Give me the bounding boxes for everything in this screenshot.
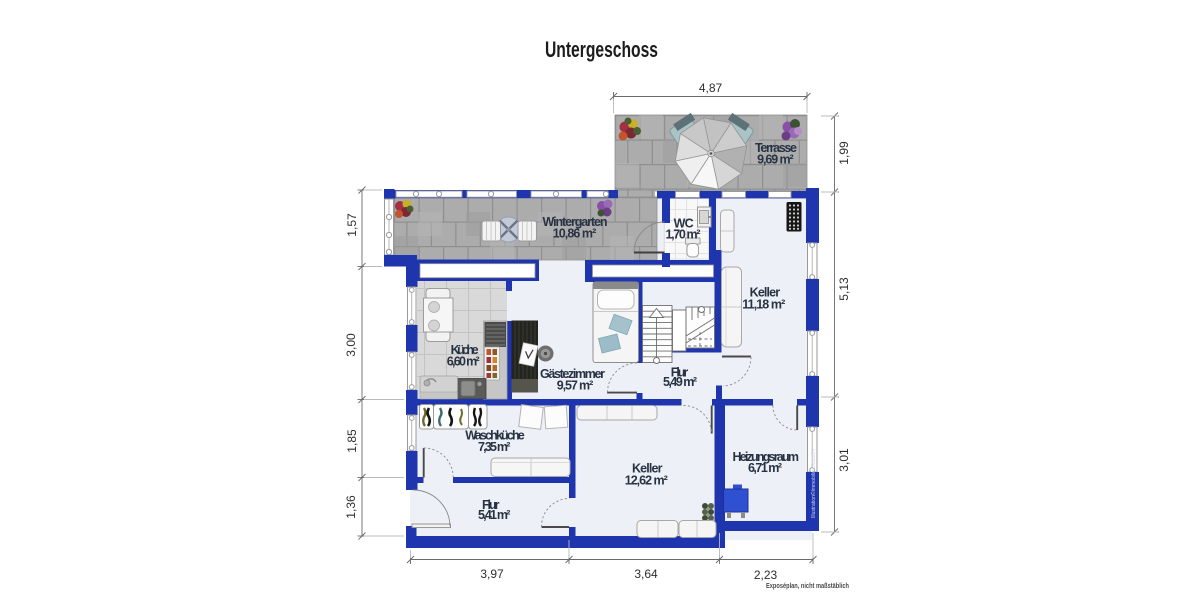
svg-text:1,36: 1,36 — [344, 495, 358, 519]
svg-text:1,57: 1,57 — [345, 213, 359, 237]
svg-text:11,18 m²: 11,18 m² — [742, 298, 785, 312]
svg-text:1,85: 1,85 — [345, 429, 359, 453]
svg-text:1,99: 1,99 — [837, 141, 851, 165]
svg-text:5,49 m²: 5,49 m² — [663, 375, 697, 389]
svg-text:Untergeschoss: Untergeschoss — [545, 37, 658, 62]
svg-text:3,00: 3,00 — [344, 333, 358, 357]
svg-text:12,62 m²: 12,62 m² — [625, 474, 668, 488]
svg-text:6,71 m²: 6,71 m² — [748, 461, 782, 475]
svg-text:Illustration©ImmobilienScout24: Illustration©ImmobilienScout24 — [810, 449, 817, 518]
svg-text:10,86 m²: 10,86 m² — [553, 227, 597, 241]
svg-text:5,41 m²: 5,41 m² — [478, 508, 511, 522]
svg-text:3,64: 3,64 — [634, 567, 658, 581]
svg-text:7,35 m²: 7,35 m² — [478, 440, 511, 454]
svg-text:1,70 m²: 1,70 m² — [666, 228, 701, 242]
svg-text:Exposéplan, nicht maßstäblich: Exposéplan, nicht maßstäblich — [766, 581, 849, 590]
svg-text:2,23: 2,23 — [754, 568, 778, 582]
svg-text:9,57 m²: 9,57 m² — [557, 378, 594, 392]
svg-text:9,69 m²: 9,69 m² — [757, 153, 794, 167]
svg-text:4,87: 4,87 — [699, 81, 723, 95]
svg-text:5,13: 5,13 — [837, 277, 851, 301]
svg-text:3,01: 3,01 — [837, 448, 851, 472]
svg-text:3,97: 3,97 — [480, 567, 504, 581]
svg-text:6,60 m²: 6,60 m² — [447, 354, 480, 368]
